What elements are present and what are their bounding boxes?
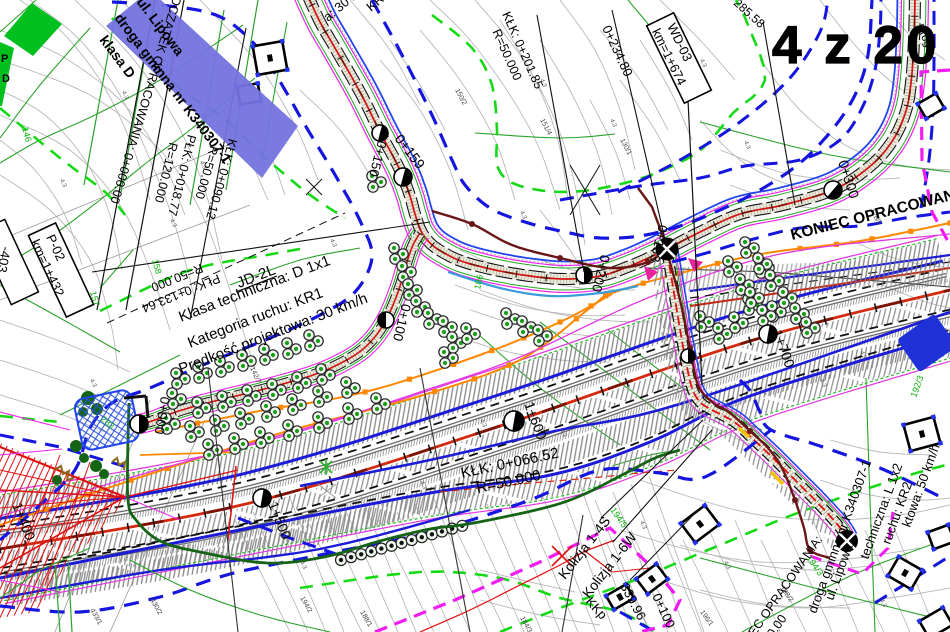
svg-text:P: P [1,53,8,65]
svg-text:D: D [2,73,10,85]
svg-text:4 z 20: 4 z 20 [772,16,940,75]
